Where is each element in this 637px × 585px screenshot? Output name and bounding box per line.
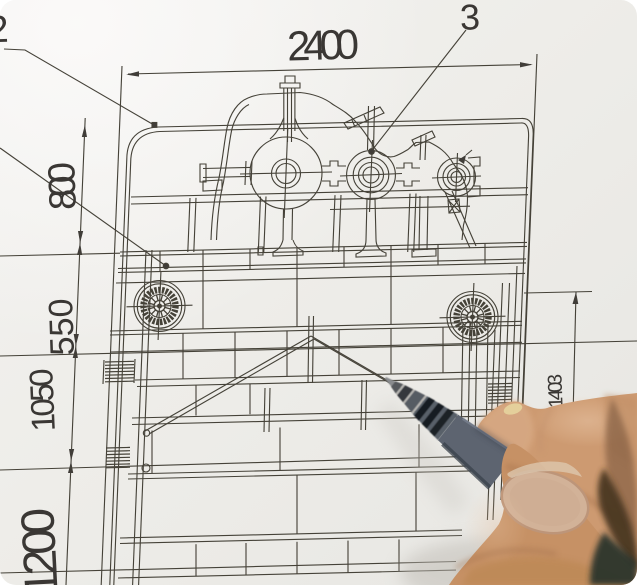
svg-text:2400: 2400 <box>286 20 359 69</box>
svg-text:800: 800 <box>41 161 85 210</box>
svg-text:3: 3 <box>459 0 480 38</box>
svg-text:2: 2 <box>0 9 9 52</box>
svg-text:550: 550 <box>42 298 82 356</box>
svg-text:1050: 1050 <box>22 368 62 433</box>
svg-text:1200: 1200 <box>10 507 68 585</box>
